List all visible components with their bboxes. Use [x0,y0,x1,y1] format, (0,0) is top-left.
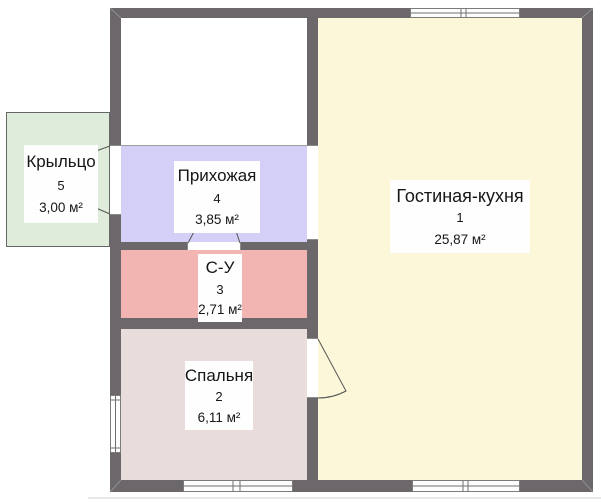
door-opening-bedroom [307,338,318,398]
room-label-bathroom: С-У 3 2,71 м² [198,254,242,322]
window-bottom-bedroom [183,480,293,492]
room-name: Крыльцо [26,153,95,171]
room-area: 25,87 м² [434,232,485,247]
room-unlabeled [121,18,307,146]
room-area: 3,00 м² [39,200,83,215]
window-top [410,8,520,18]
room-number: 3 [216,283,223,297]
room-number: 4 [213,192,220,206]
room-label-bedroom: Спальня 2 6,11 м² [185,361,253,430]
room-area: 6,11 м² [198,410,241,425]
room-label-porch: Крыльцо 5 3,00 м² [24,145,98,223]
room-label-living: Гостиная-кухня 1 25,87 м² [390,180,530,253]
room-name: Спальня [185,367,253,385]
room-number: 2 [215,390,222,404]
passage-hallway-living [307,145,318,240]
room-area: 2,71 м² [198,302,242,317]
room-number: 1 [456,211,463,225]
floor-plan: Крыльцо 5 3,00 м² Прихожая 4 3,85 м² С-У… [0,0,601,502]
room-name: С-У [206,259,235,277]
room-number: 5 [57,179,64,193]
door-opening-bathroom [187,242,241,250]
room-name: Прихожая [178,167,257,185]
room-label-hallway: Прихожая 4 3,85 м² [174,161,260,233]
room-area: 3,85 м² [195,212,239,227]
room-name: Гостиная-кухня [396,187,523,205]
window-left-bedroom [110,395,121,453]
window-bottom-living [412,480,520,492]
door-opening-porch [110,145,121,215]
